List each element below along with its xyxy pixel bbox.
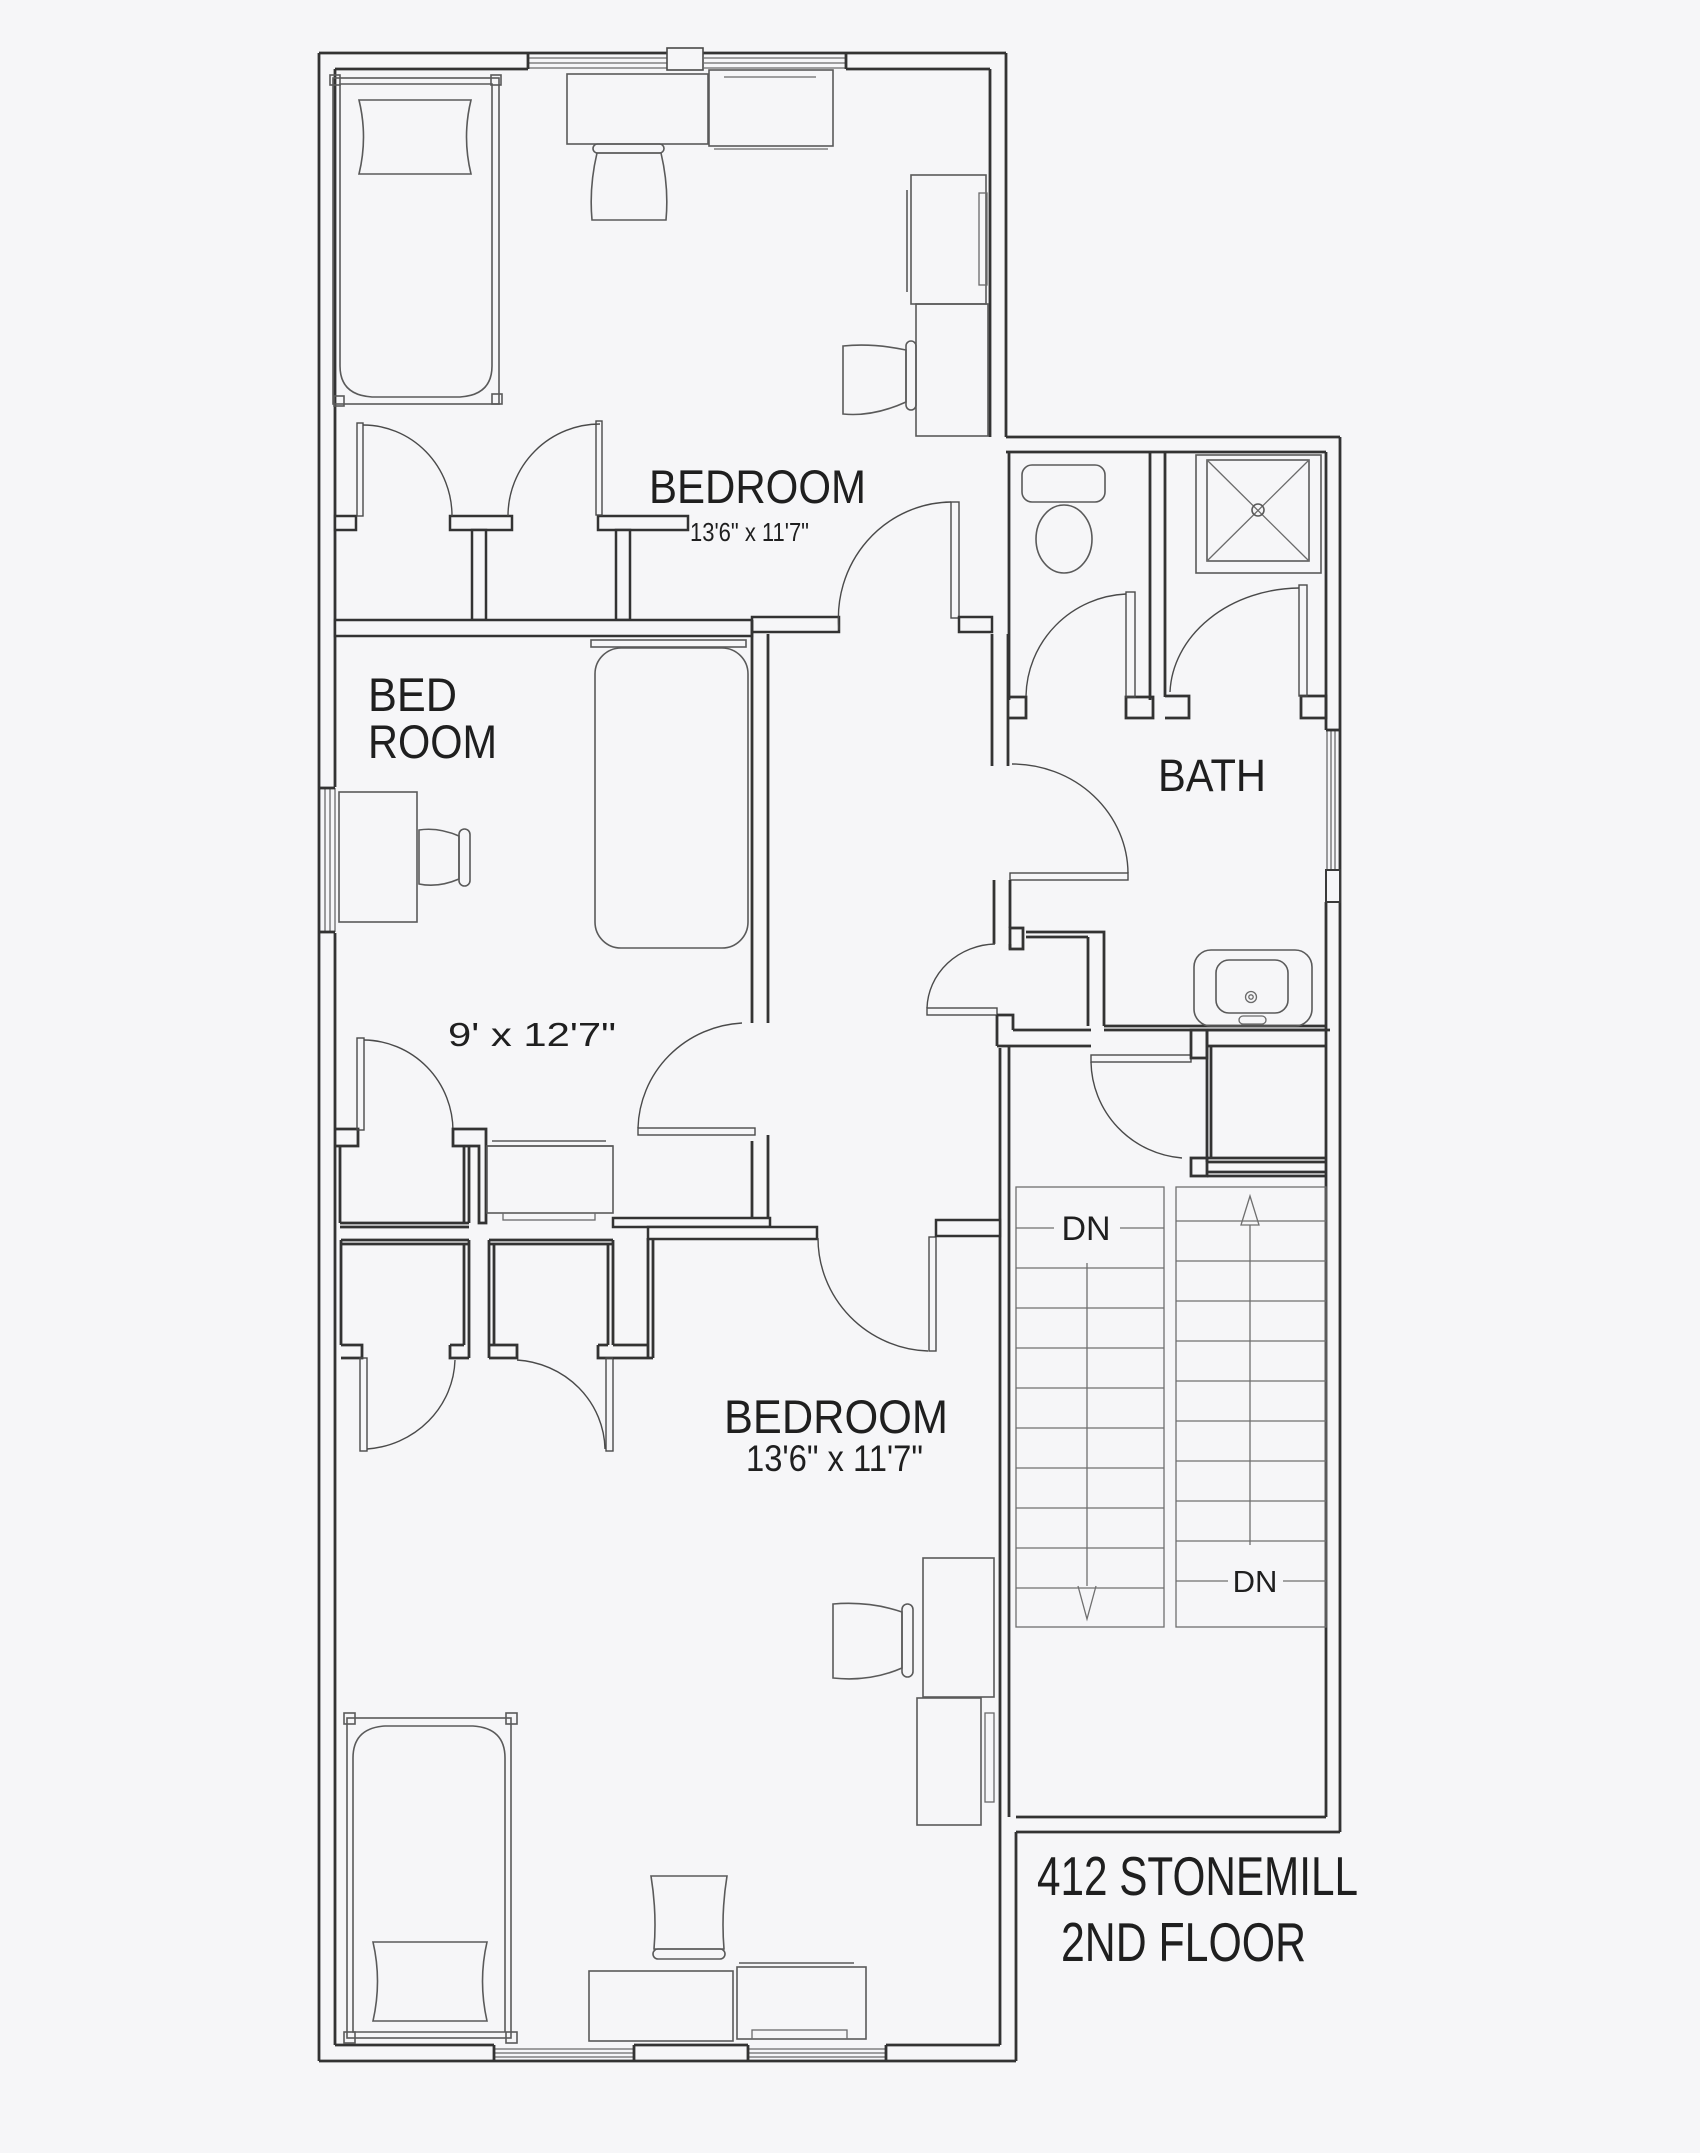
svg-text:412 STONEMILL: 412 STONEMILL [1037, 1845, 1358, 1907]
svg-text:13'6" x 11'7": 13'6" x 11'7" [746, 1438, 923, 1479]
svg-text:DN: DN [1061, 1210, 1110, 1248]
svg-text:BED: BED [368, 668, 457, 721]
svg-text:BEDROOM: BEDROOM [649, 460, 866, 513]
svg-text:ROOM: ROOM [368, 715, 497, 768]
svg-text:DN: DN [1233, 1564, 1278, 1599]
svg-text:13'6" x 11'7": 13'6" x 11'7" [690, 517, 809, 547]
svg-text:9' x 12'7": 9' x 12'7" [448, 1016, 616, 1053]
svg-text:BEDROOM: BEDROOM [724, 1390, 948, 1443]
svg-text:BATH: BATH [1158, 750, 1266, 801]
svg-text:2ND FLOOR: 2ND FLOOR [1061, 1911, 1306, 1973]
